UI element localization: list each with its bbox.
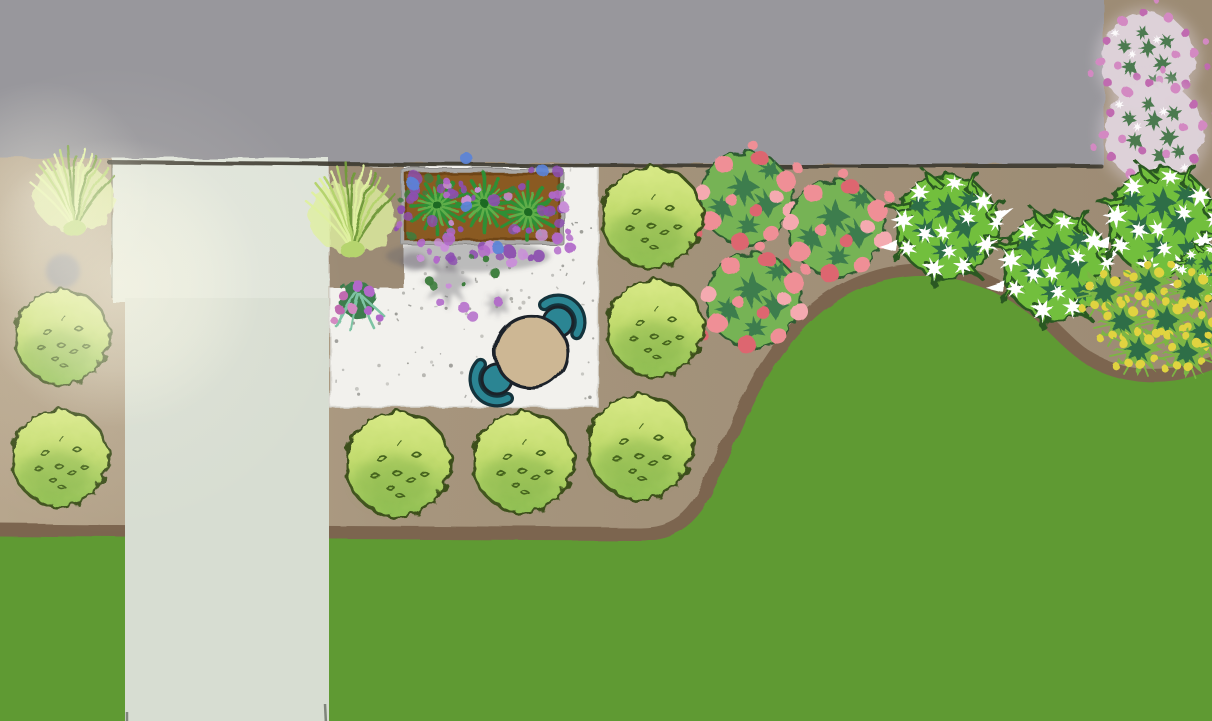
blue-flower [460,200,472,212]
round-shrub [607,280,703,376]
round-shrub [588,395,692,499]
blue-flower [492,242,504,254]
blue-flower [461,153,473,165]
blue-flower [407,178,419,190]
round-shrub [473,412,573,512]
garden-plan [0,0,1212,721]
bistro-table [495,316,567,388]
garden-plan-illustration [0,0,1212,721]
round-shrub [346,412,450,516]
round-shrub [602,167,702,267]
blue-flower [537,165,549,177]
walkway-mark [325,704,326,721]
